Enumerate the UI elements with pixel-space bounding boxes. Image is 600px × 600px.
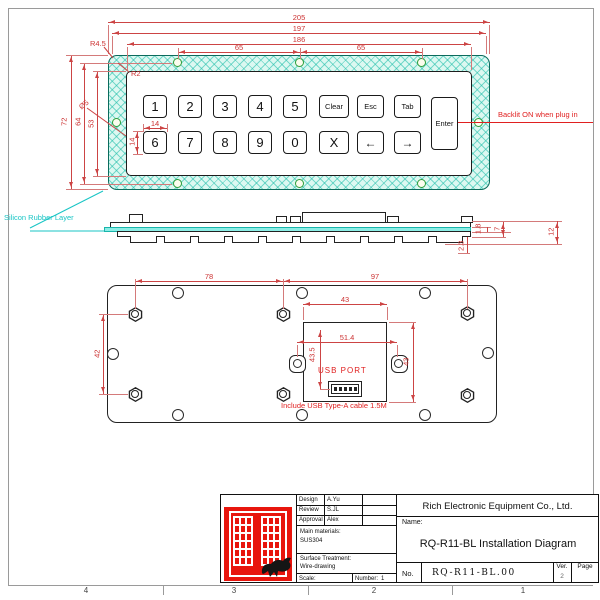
tb-line [296,553,396,554]
review-value: S.JL [327,507,339,514]
name-label: Name: [402,519,423,527]
tb-line [296,573,396,574]
horse-silhouette [259,551,295,579]
drawing-title: RQ-R11-BL Installation Diagram [398,538,598,551]
number-value: 1 [381,576,384,583]
materials-value: SUS304 [300,538,322,545]
review-label: Review [299,507,319,514]
ver-value: 2 [554,573,570,581]
tb-line [421,562,422,583]
tb-line [396,516,599,517]
tb-line [324,494,325,525]
company-name: Rich Electronic Equipment Co., Ltd. [397,501,598,512]
number-label: Number: [355,576,378,583]
tb-line [296,494,297,583]
installation-diagram: 4 3 2 1 1 2 3 4 5 Clear Esc Tab 6 7 8 9 … [0,0,600,600]
tb-line [296,515,396,516]
no-value: RQ-R11-BL.00 [432,568,516,579]
surface-value: Wire-drawing [300,564,335,571]
materials-label: Main materials: [300,529,341,536]
approval-value: Alex [327,517,339,524]
ver-label: Ver. [554,563,570,571]
approval-label: Approval [299,517,323,524]
tb-line [296,505,396,506]
seal-character [233,516,253,566]
design-label: Design [299,497,318,504]
tb-line [352,573,353,583]
surface-label: Surface Treatment: [300,556,351,563]
design-value: A.Yu [327,497,340,504]
page-label: Page [572,563,598,571]
tb-line [362,494,363,525]
tb-line [296,525,396,526]
scale-label: Scale: [299,576,316,583]
no-label: No. [402,569,414,578]
